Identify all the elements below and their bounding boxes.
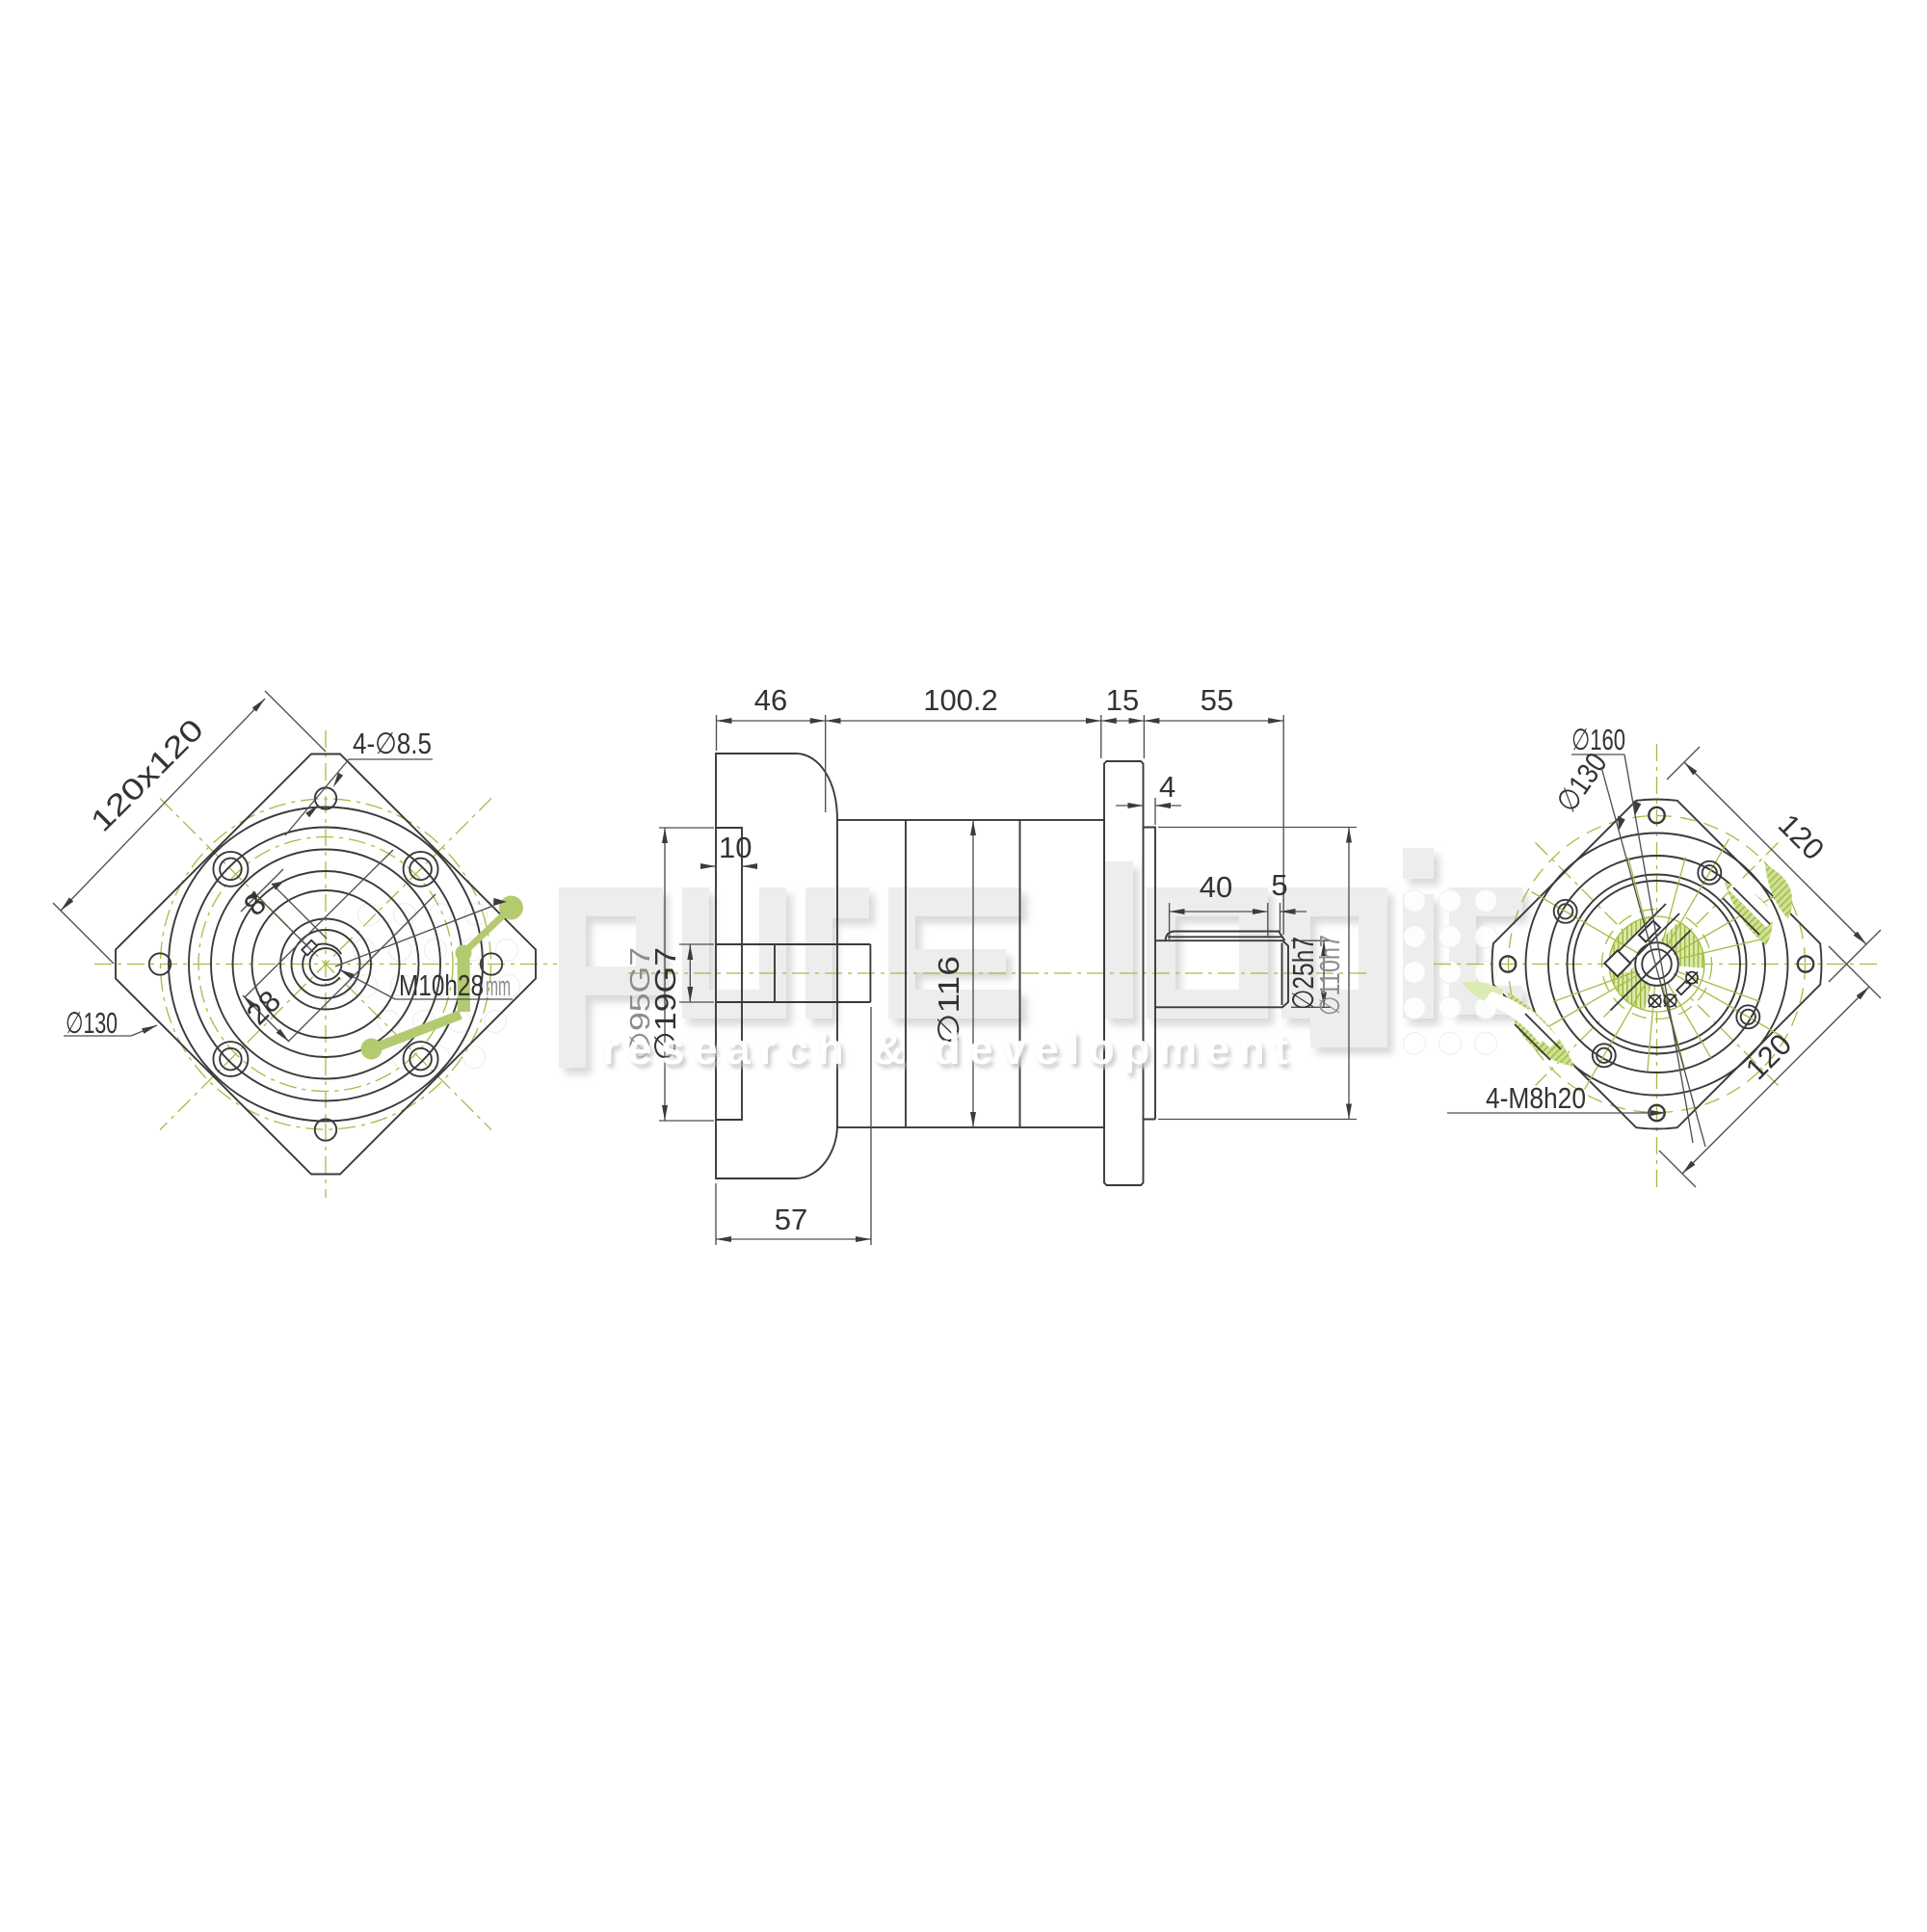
svg-text:57: 57 [775,1203,807,1236]
svg-text:5: 5 [1271,868,1287,902]
svg-text:10: 10 [719,831,752,864]
svg-text:55: 55 [1201,683,1233,717]
svg-text:∅160: ∅160 [1571,723,1625,756]
svg-text:40: 40 [1200,870,1232,904]
svg-text:∅130: ∅130 [66,1006,118,1040]
svg-text:4: 4 [1159,770,1175,804]
svg-text:∅110h7: ∅110h7 [1315,935,1346,1016]
svg-text:15: 15 [1106,683,1139,717]
svg-text:mm: mm [486,971,511,1002]
svg-text:4-∅8.5: 4-∅8.5 [353,727,432,760]
svg-text:4-M8h20: 4-M8h20 [1486,1081,1586,1115]
svg-text:100.2: 100.2 [923,683,998,717]
svg-text:M10h28: M10h28 [399,968,484,1002]
svg-text:research & development: research & development [602,1024,1297,1073]
svg-text:46: 46 [754,683,787,717]
